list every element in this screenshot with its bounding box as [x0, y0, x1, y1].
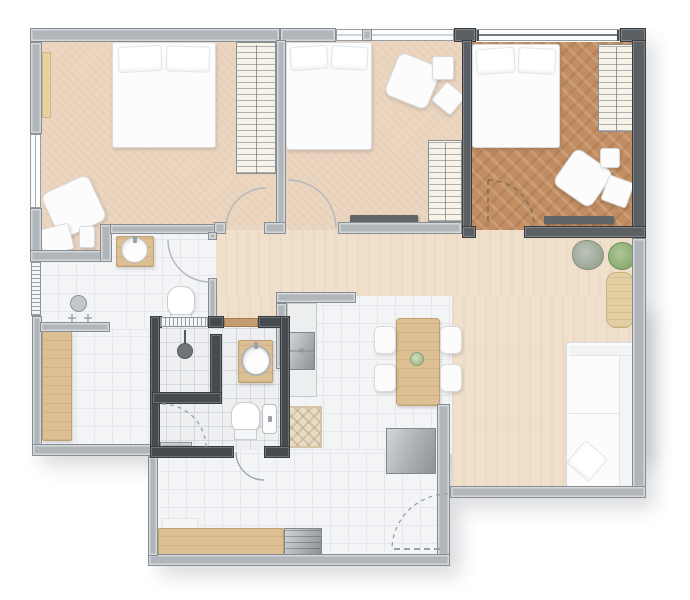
wall-bathroom1-top — [110, 224, 216, 234]
kitchen-sink-faucet — [299, 348, 304, 353]
dining-chair — [440, 364, 462, 392]
bedroom2-window — [336, 29, 454, 41]
balcony-wood-bench — [158, 528, 284, 556]
bedroom2-side-table — [432, 56, 454, 80]
wall-left-upper — [30, 42, 42, 134]
wall-master-bottom-jamb — [462, 226, 476, 238]
wall-bedroom2-bottom — [338, 222, 462, 234]
bathroom2-wood-threshold — [224, 318, 258, 327]
bedroom1-wardrobe — [236, 42, 276, 174]
bathroom2-faucet — [254, 342, 258, 349]
wall-bathroom1-right-stub — [208, 232, 217, 240]
wall-balcony-living-divider — [437, 404, 450, 566]
wall-master-right — [632, 40, 646, 238]
dining-chair — [374, 364, 396, 392]
wardrobe-rail — [256, 45, 257, 173]
wall-bathroom1-right — [208, 278, 217, 320]
master-window — [476, 29, 620, 41]
bedroom1-left-window — [30, 134, 41, 208]
dining-chair — [440, 326, 462, 354]
sofa-seam — [569, 413, 619, 414]
service-tall-cabinet — [42, 331, 72, 441]
sofa-armrest — [569, 345, 635, 356]
living-sideboard — [606, 272, 634, 328]
wardrobe-rail — [445, 143, 446, 221]
bathroom2-vent-window — [160, 317, 208, 327]
wall-bedroom1-bottom-left — [30, 250, 110, 262]
floor-plan — [0, 0, 690, 600]
bedroom1-pillow — [117, 45, 162, 73]
dining-chair — [374, 326, 396, 354]
hallway-floor — [214, 230, 634, 296]
bathroom2-shower-head — [177, 343, 193, 359]
wall-service-bottom — [32, 444, 162, 456]
grill-or-tv-panel — [386, 428, 436, 474]
wall-living-bottom — [450, 486, 646, 498]
bedroom2-wardrobe — [428, 140, 462, 222]
master-pillow — [475, 47, 516, 76]
wall-balcony-bottom — [148, 554, 450, 566]
bathroom2-toilet-tank — [234, 429, 257, 440]
balcony-grill — [284, 528, 322, 556]
wall-kitchen-half-horizontal — [276, 292, 356, 303]
bathroom2-toilet-bowl — [231, 402, 260, 432]
bedroom2-pillow — [289, 45, 329, 72]
wall-shower-service-divider — [40, 322, 110, 332]
bathroom2-round-basin — [241, 345, 271, 376]
bedroom1-pillow — [166, 45, 211, 73]
wall-wc-right — [280, 316, 290, 458]
wall-bedroom1-door-jamb-right — [264, 222, 286, 234]
wall-wc-top-mid — [208, 316, 224, 328]
bathroom1-faucet — [133, 236, 137, 243]
wall-bedroom1-bedroom2-divider — [276, 40, 286, 232]
bathroom1-toilet-bowl — [167, 286, 195, 316]
bedroom1-small-table — [79, 226, 95, 248]
bathroom1-vent-window — [31, 256, 41, 316]
bathroom2-hand-basin-faucet — [268, 416, 272, 422]
wall-wc-bottom-left — [150, 446, 234, 458]
wall-living-right — [632, 238, 646, 488]
wall-top-bedroom1 — [30, 28, 280, 42]
plant-sage — [572, 240, 604, 270]
wall-wc-left — [150, 316, 160, 458]
wall-left-lower — [32, 316, 42, 448]
master-low-shelf — [544, 216, 614, 224]
bedroom2-window-mullion — [362, 29, 372, 41]
master-wardrobe — [598, 44, 634, 132]
bedroom1-window-sill — [42, 52, 51, 118]
wall-wc-shower-bottom — [152, 392, 222, 404]
wall-master-bottom — [524, 226, 646, 238]
wall-wc-shower-stub — [210, 334, 222, 394]
master-side-table — [600, 148, 620, 168]
table-centerpiece — [410, 352, 424, 366]
wall-master-left — [462, 40, 472, 232]
bathroom1-shower-head — [70, 295, 87, 312]
master-pillow — [517, 47, 556, 75]
wall-left-mid — [30, 208, 42, 256]
wall-wc-bottom-right — [264, 446, 290, 458]
bedroom2-pillow — [330, 45, 368, 71]
wall-top-bedroom2-left — [280, 28, 336, 42]
wardrobe-rail — [616, 47, 617, 131]
wall-balcony-left — [148, 456, 158, 556]
